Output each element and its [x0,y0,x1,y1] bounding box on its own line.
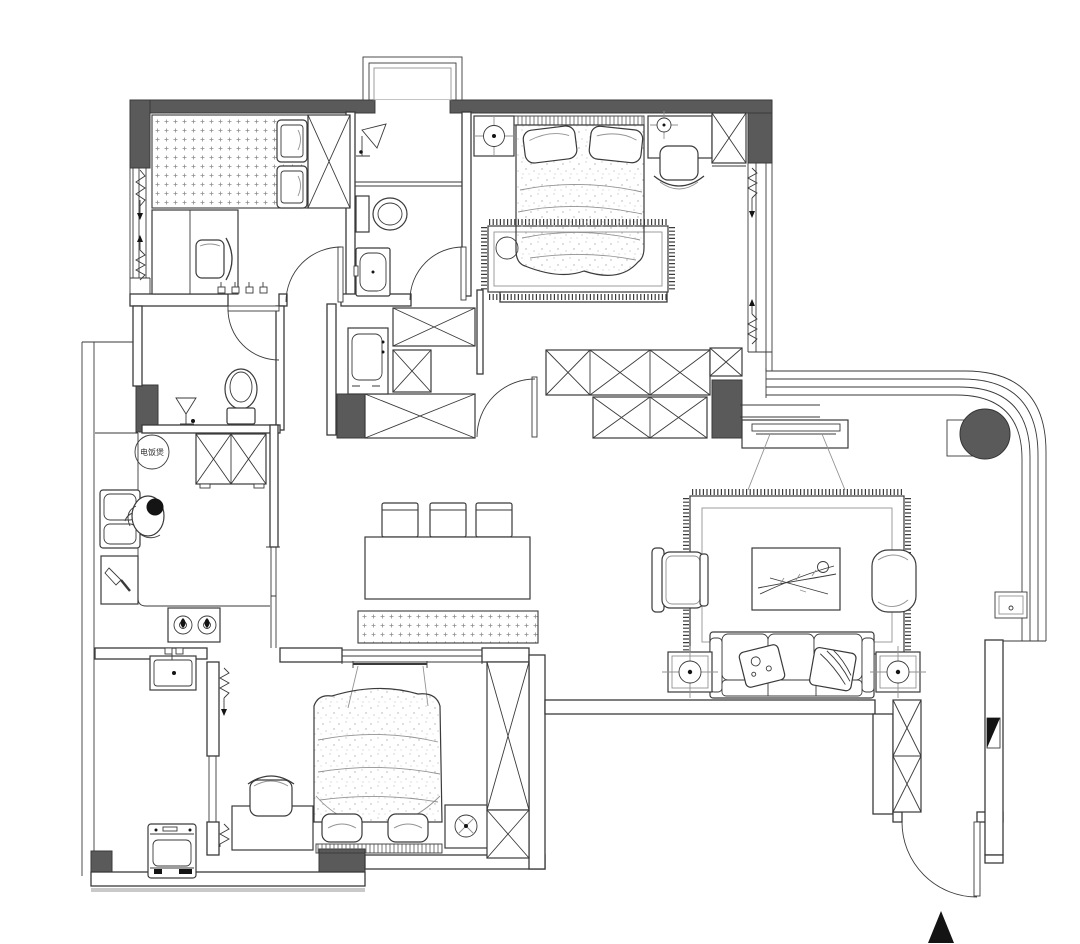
dining-chair [476,503,512,537]
pillow [522,125,578,164]
chair [248,776,294,816]
duvet [314,688,442,822]
rice-cooker-text: 电饭煲 [140,447,164,457]
room-living [652,405,926,698]
shower-symbol [356,124,386,156]
rice-cooker-label: 电饭煲 [135,435,169,469]
dining-table [365,537,530,599]
wall-top-left [130,100,375,113]
markers [928,911,954,943]
wash-basin [354,248,390,296]
tv-unit [740,405,848,490]
sliding-door-balcony [207,756,219,822]
side-table-lamp [870,646,926,698]
window-master-east [748,163,772,371]
double-bed [514,116,644,275]
side-table-lamp [662,646,718,698]
room-laundry-balcony [148,648,196,878]
armchair [652,548,708,612]
room-wc [176,369,257,424]
column-top-right [748,113,772,163]
window-bedroom2-west [133,168,146,280]
pillow [388,814,428,842]
column-hall-left [337,394,365,438]
floor-drain-symbol [176,398,196,424]
closet-x [393,350,431,392]
bench-dotted [358,611,538,643]
closet-row-lower [593,397,707,438]
room-kitchen: 电饭煲 [95,433,270,642]
pillow [277,166,307,208]
wardrobe-x [487,662,529,858]
shower-divider [355,182,462,186]
wall-top-right [450,100,772,113]
pouf [872,550,916,612]
pillow [277,120,307,162]
entry [893,700,1000,812]
dining-chair [430,503,466,537]
nightstand-lamp [474,116,514,156]
toilet [356,196,407,232]
toilet [225,369,257,424]
door-master-bedroom [477,377,537,437]
section-marker [987,718,1000,748]
threshold-shade [91,888,365,892]
sofa [710,632,874,698]
cutting-board [101,556,138,604]
room-master-bedroom [474,111,746,297]
door-bedroom2 [286,247,343,302]
curtain-zigzag [220,668,229,847]
desk [152,210,238,294]
column-top-left [130,100,150,168]
shoe-cabinet-x [893,700,921,812]
washer-cabinet [348,328,388,394]
room-bedroom2 [152,115,350,294]
room-bathroom [354,124,462,296]
sliding-door-kitchen [266,547,280,648]
bay-window [363,57,462,113]
north-arrow-icon [928,911,954,943]
floor-cushion [496,237,518,259]
floor-plan: 电饭煲 [0,0,1080,944]
door-entry [902,822,980,897]
refrigerator-x [196,434,266,488]
pillow [322,814,362,842]
chair [654,146,704,189]
door-wc [228,306,279,360]
closet-x [365,394,475,438]
room-bedroom3 [220,662,529,858]
door-bathroom [410,247,466,300]
closet-x [393,308,475,346]
pillow [588,125,643,163]
headboard [514,116,644,125]
balcony-wall-panel [995,592,1027,618]
dining-chair [382,503,418,537]
gas-stove [168,608,220,642]
wardrobe-x [712,113,746,166]
room-dining [358,503,538,643]
footboard [316,844,442,853]
floor-plan-canvas: 电饭煲 [0,0,1080,944]
wardrobe-x [308,115,350,208]
nightstand-lamp [445,805,488,848]
coffee-table [752,548,840,610]
round-column [960,409,1010,459]
washing-machine [148,824,196,878]
hall-closets [348,308,742,438]
column-hall-right [712,380,742,438]
double-bed [314,688,442,853]
throw-pillow-striped [809,647,857,692]
